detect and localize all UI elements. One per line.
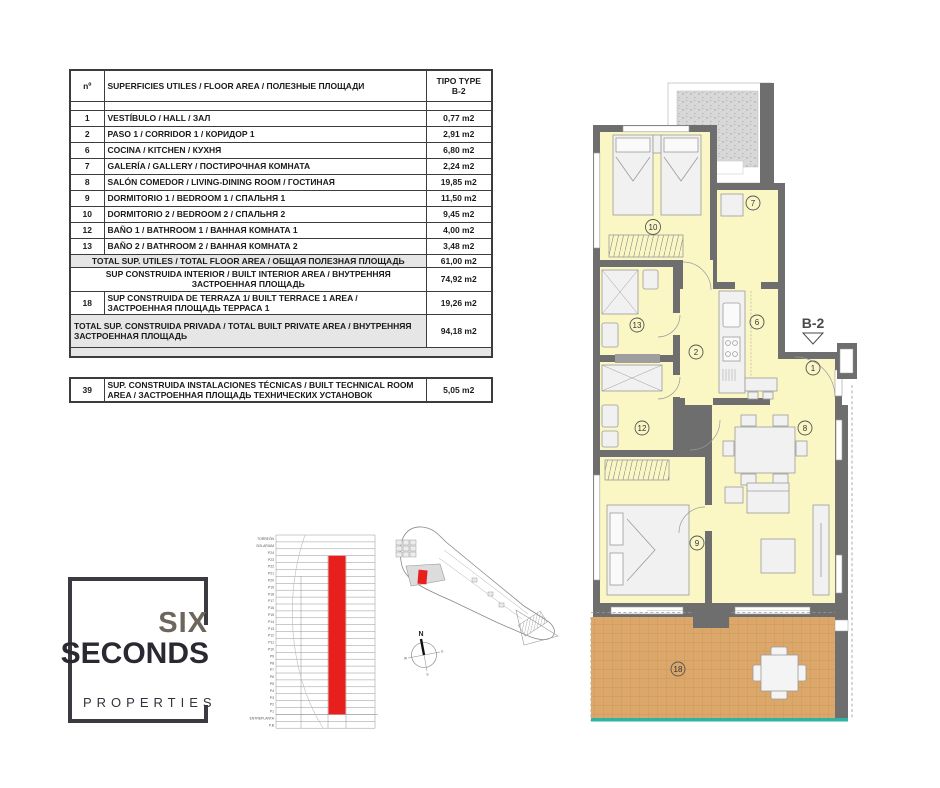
cell-value: 19,85 m2 <box>426 175 492 191</box>
cell-num: 2 <box>70 127 104 143</box>
unit-type-label: B-2 <box>802 315 825 331</box>
gray-spacer-row <box>70 347 492 357</box>
floor-label: P22 <box>268 565 274 569</box>
table-header-row: nº SUPERFICIES UTILES / FLOOR AREA / ПОЛ… <box>70 70 492 102</box>
window-living-right-2 <box>836 555 842 593</box>
spacer-row <box>70 102 492 111</box>
compass-n-label: N <box>418 631 423 638</box>
cell-desc: SUP CONSTRUIDA DE TERRAZA 1/ BUILT TERRA… <box>104 291 426 314</box>
cell-value: 61,00 m2 <box>426 255 492 268</box>
site-east-building <box>518 611 547 636</box>
floor-label: P14 <box>268 620 274 624</box>
cell-desc: SALÓN COMEDOR / LIVING-DINING ROOM / ГОС… <box>104 175 426 191</box>
floor-label: P13 <box>268 627 274 631</box>
floor-label: P5 <box>270 682 274 686</box>
table-row: 12BAÑO 1 / BATHROOM 1 / ВАННАЯ КОМНАТА 1… <box>70 223 492 239</box>
wardrobe-bedroom1 <box>605 460 669 480</box>
cell-value: 74,92 m2 <box>426 268 492 291</box>
floor-label: P21 <box>268 572 274 576</box>
floor-label: P16 <box>268 606 274 610</box>
kitchen-hob <box>723 337 740 361</box>
cell-num: 10 <box>70 207 104 223</box>
cell-desc: DORMITORIO 1 / BEDROOM 1 / СПАЛЬНЯ 1 <box>104 191 426 207</box>
logo-word-properties: PROPERTIES <box>83 695 217 710</box>
badge-gallery: 7 <box>751 199 756 208</box>
terrace-table <box>761 655 798 691</box>
floor-label: P3 <box>270 696 274 700</box>
floor-label: P17 <box>268 599 274 603</box>
technical-room-table: 39 SUP. CONSTRUIDA INSTALACIONES TÉCNICA… <box>69 377 493 403</box>
floor-label: P18 <box>268 592 274 596</box>
highlighted-unit-stack <box>329 556 346 715</box>
compass-north-needle <box>421 639 424 655</box>
cell-desc: PASO 1 / CORRIDOR 1 / КОРИДОР 1 <box>104 127 426 143</box>
floor-label: P6 <box>270 675 274 679</box>
technical-table-block: 39 SUP. CONSTRUIDA INSTALACIONES TÉCNICA… <box>69 377 493 403</box>
six-seconds-logo: SIX SECONDS PROPERTIES <box>68 577 208 723</box>
cell-num: 6 <box>70 143 104 159</box>
badge-bath2: 13 <box>633 321 642 330</box>
table-row: 1VESTÍBULO / HALL / ЗАЛ0,77 m2 <box>70 111 492 127</box>
cell-num: 12 <box>70 223 104 239</box>
room-corridor <box>680 289 717 398</box>
site-road-lines <box>439 550 528 619</box>
building-elevation-figure: TORREÓNSOLARIUMP24P23P22P21P20P19P18P17P… <box>243 531 379 733</box>
cell-num: 39 <box>70 378 104 402</box>
floor-label: P2 <box>270 703 274 707</box>
cell-value: 3,48 m2 <box>426 239 492 255</box>
built-interior-row: SUP CONSTRUIDA INTERIOR / BUILT INTERIOR… <box>70 268 492 291</box>
logo-word-six: SIX <box>158 607 208 640</box>
cell-value: 94,18 m2 <box>426 314 492 347</box>
terrace-side-wall <box>760 83 774 183</box>
cell-value: 5,05 m2 <box>426 378 492 402</box>
logo-frame-bottom <box>68 719 208 723</box>
compass-s-label: S <box>426 673 428 677</box>
apartment-floorplan-svg: B-2 <box>585 75 885 735</box>
table-row: 8SALÓN COMEDOR / LIVING-DINING ROOM / ГО… <box>70 175 492 191</box>
floor-label: TORREÓN <box>257 536 274 541</box>
badge-corridor: 2 <box>694 348 699 357</box>
site-plan-figure: N E W S <box>378 518 568 688</box>
window-living-right-1 <box>836 420 842 460</box>
cell-num: 9 <box>70 191 104 207</box>
duct-shaft <box>615 354 660 363</box>
cell-desc: BAÑO 2 / BATHROOM 2 / ВАННАЯ КОМНАТА 2 <box>104 239 426 255</box>
apartment-floorplan-figure: B-2 <box>585 75 885 735</box>
cell-num: 7 <box>70 159 104 175</box>
window-left-bedroom1 <box>594 475 600 580</box>
floor-label: P8 <box>270 661 274 665</box>
cell-num: 13 <box>70 239 104 255</box>
cell-desc: VESTÍBULO / HALL / ЗАЛ <box>104 111 426 127</box>
badge-terrace: 18 <box>674 665 683 674</box>
floor-label: P12 <box>268 634 274 638</box>
cell-num: 18 <box>70 291 104 314</box>
cell-value: 2,24 m2 <box>426 159 492 175</box>
logo-frame-top <box>68 577 208 581</box>
floor-label: SOLARIUM <box>256 544 274 548</box>
table-row: 13BAÑO 2 / BATHROOM 2 / ВАННАЯ КОМНАТА 2… <box>70 239 492 255</box>
floor-label: P15 <box>268 613 274 617</box>
site-courts-grid <box>396 540 416 557</box>
table-row: 2PASO 1 / CORRIDOR 1 / КОРИДОР 12,91 m2 <box>70 127 492 143</box>
logo-word-seconds: SECONDS <box>61 637 209 671</box>
wardrobe-bedroom2 <box>609 235 683 257</box>
cell-num: 1 <box>70 111 104 127</box>
toilet-bath1 <box>602 405 618 427</box>
table-row: 6COCINA / KITCHEN / КУХНЯ6,80 m2 <box>70 143 492 159</box>
side-table <box>725 487 743 503</box>
floor-area-table: nº SUPERFICIES UTILES / FLOOR AREA / ПОЛ… <box>69 69 493 358</box>
floor-label: P24 <box>268 551 274 555</box>
site-small-structures <box>472 578 504 607</box>
compass-w-label: W <box>404 657 407 661</box>
site-plan-svg: N E W S <box>378 518 568 688</box>
badge-bedroom1: 9 <box>695 539 700 548</box>
sink-bath2 <box>643 270 658 289</box>
site-highlighted-tower <box>417 570 427 585</box>
glass-balustrade <box>591 718 848 722</box>
window-left-bedroom2 <box>594 153 600 248</box>
kitchen-sink <box>723 303 740 327</box>
building-elevation-svg: TORREÓNSOLARIUMP24P23P22P21P20P19P18P17P… <box>243 531 379 733</box>
cell-value: 6,80 m2 <box>426 143 492 159</box>
cell-value: 2,91 m2 <box>426 127 492 143</box>
floor-label: P20 <box>268 579 274 583</box>
cell-value: 0,77 m2 <box>426 111 492 127</box>
window-bedroom2 <box>623 126 689 132</box>
kitchen-island <box>745 378 777 391</box>
sofa <box>747 483 789 513</box>
sink-bath1 <box>602 431 618 447</box>
floor-label: P11 <box>268 641 274 645</box>
badge-kitchen: 6 <box>755 318 760 327</box>
header-description: SUPERFICIES UTILES / FLOOR AREA / ПОЛЕЗН… <box>104 70 426 102</box>
badge-living: 8 <box>803 424 808 433</box>
area-table-block: nº SUPERFICIES UTILES / FLOOR AREA / ПОЛ… <box>69 69 493 358</box>
technical-row: 39 SUP. CONSTRUIDA INSTALACIONES TÉCNICA… <box>70 378 492 402</box>
cell-num: 8 <box>70 175 104 191</box>
ottoman <box>761 539 795 573</box>
dining-table <box>735 427 795 473</box>
terrace-pillar <box>693 607 729 628</box>
compass-rose: N E W S <box>404 631 444 677</box>
floor-label: P1 <box>270 710 274 714</box>
floor-label: P10 <box>268 648 274 652</box>
header-type-line1: TIPO TYPE <box>430 76 489 86</box>
compass-e-label: E <box>441 650 443 654</box>
floor-label: P.B <box>269 723 275 727</box>
cell-desc: COCINA / KITCHEN / КУХНЯ <box>104 143 426 159</box>
cell-desc: GALERÍA / GALLERY / ПОСТИРОЧНАЯ КОМНАТА <box>104 159 426 175</box>
toilet-bath2 <box>602 323 618 347</box>
floor-label: P23 <box>268 558 274 562</box>
cell-value: 19,26 m2 <box>426 291 492 314</box>
cell-desc: BAÑO 1 / BATHROOM 1 / ВАННАЯ КОМНАТА 1 <box>104 223 426 239</box>
cell-desc: SUP CONSTRUIDA INTERIOR / BUILT INTERIOR… <box>70 268 426 291</box>
cell-desc: TOTAL SUP. UTILES / TOTAL FLOOR AREA / О… <box>70 255 426 268</box>
header-type-line2: B-2 <box>430 86 489 96</box>
cell-value: 9,45 m2 <box>426 207 492 223</box>
elevation-floor-labels: TORREÓNSOLARIUMP24P23P22P21P20P19P18P17P… <box>250 536 275 727</box>
badge-hall: 1 <box>811 364 816 373</box>
cell-desc: SUP. CONSTRUIDA INSTALACIONES TÉCNICAS /… <box>104 378 426 402</box>
room-hall <box>770 359 835 405</box>
header-type: TIPO TYPE B-2 <box>426 70 492 102</box>
floorplan-sheet: nº SUPERFICIES UTILES / FLOOR AREA / ПОЛ… <box>0 0 940 788</box>
washing-machine <box>721 194 743 216</box>
private-terrace <box>591 607 848 722</box>
cell-value: 11,50 m2 <box>426 191 492 207</box>
floor-label: ENTREPLANTA <box>250 717 275 721</box>
elevation-floor-lines <box>276 535 375 728</box>
table-row: 7GALERÍA / GALLERY / ПОСТИРОЧНАЯ КОМНАТА… <box>70 159 492 175</box>
badge-bath1: 12 <box>638 424 647 433</box>
floor-label: P19 <box>268 585 274 589</box>
nightstand <box>653 135 661 153</box>
floor-label: P9 <box>270 654 274 658</box>
cell-desc: TOTAL SUP. CONSTRUIDA PRIVADA / TOTAL BU… <box>70 314 426 347</box>
terrace-row: 18 SUP CONSTRUIDA DE TERRAZA 1/ BUILT TE… <box>70 291 492 314</box>
floor-label: P7 <box>270 668 274 672</box>
unit-pointer-triangle <box>803 333 823 344</box>
cell-desc: DORMITORIO 2 / BEDROOM 2 / СПАЛЬНЯ 2 <box>104 207 426 223</box>
terrace-table-set <box>753 647 806 699</box>
badge-bedroom2: 10 <box>649 223 658 232</box>
floor-label: P4 <box>270 689 274 693</box>
total-private-row: TOTAL SUP. CONSTRUIDA PRIVADA / TOTAL BU… <box>70 314 492 347</box>
header-number: nº <box>70 70 104 102</box>
table-row: 10DORMITORIO 2 / BEDROOM 2 / СПАЛЬНЯ 29,… <box>70 207 492 223</box>
cell-value: 4,00 m2 <box>426 223 492 239</box>
total-useful-row: TOTAL SUP. UTILES / TOTAL FLOOR AREA / О… <box>70 255 492 268</box>
table-row: 9DORMITORIO 1 / BEDROOM 1 / СПАЛЬНЯ 111,… <box>70 191 492 207</box>
entrance-door-frame <box>837 343 857 379</box>
